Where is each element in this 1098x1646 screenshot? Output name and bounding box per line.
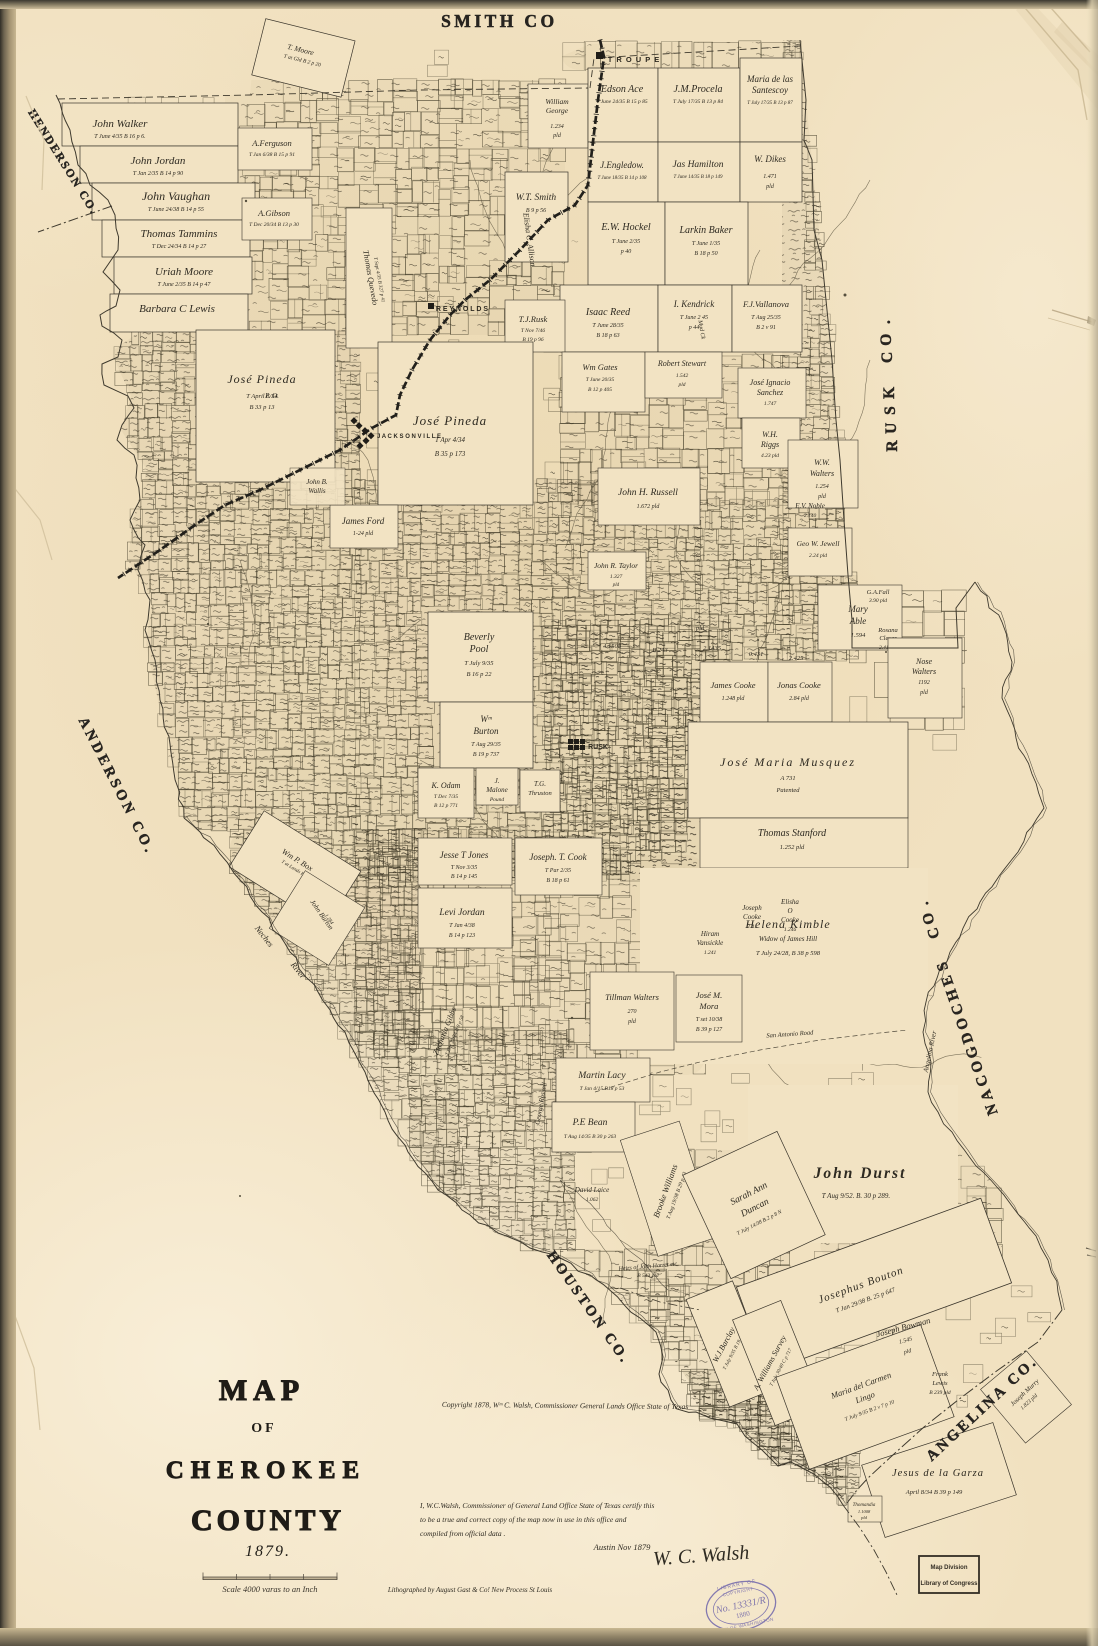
svg-text:B 239 pld: B 239 pld <box>929 1390 951 1396</box>
svg-text:J.: J. <box>495 777 500 785</box>
svg-text:pld: pld <box>627 1019 637 1025</box>
svg-text:pld: pld <box>817 494 827 500</box>
svg-text:T June 18/35 B 14 p 108: T June 18/35 B 14 p 108 <box>597 176 647 181</box>
svg-text:CHEROKEE: CHEROKEE <box>166 1457 366 1484</box>
svg-text:Vansickle: Vansickle <box>697 939 723 947</box>
svg-text:John R. Taylor: John R. Taylor <box>594 561 638 570</box>
svg-text:1.062: 1.062 <box>586 1197 599 1203</box>
svg-text:Walters: Walters <box>810 469 834 478</box>
svg-text:O: O <box>878 334 895 346</box>
svg-text:James Cooke: James Cooke <box>710 680 755 690</box>
svg-text:pld: pld <box>677 382 685 388</box>
svg-text:Lewis: Lewis <box>931 1380 948 1387</box>
svg-text:B 543 pld: B 543 pld <box>637 1272 659 1279</box>
svg-text:Jonas Cooke: Jonas Cooke <box>777 680 821 690</box>
svg-text:P.E Bean: P.E Bean <box>572 1118 608 1128</box>
svg-text:Thruston: Thruston <box>528 790 551 797</box>
svg-text:Jas Hamilton: Jas Hamilton <box>673 160 724 170</box>
svg-text:Rosana: Rosana <box>877 627 898 634</box>
svg-text:C: C <box>879 352 896 363</box>
svg-text:1.594: 1.594 <box>851 632 866 639</box>
svg-text:SMITH: SMITH <box>441 11 517 31</box>
svg-text:2.1435: 2.1435 <box>703 645 722 652</box>
svg-text:T Nov 7/46: T Nov 7/46 <box>521 327 546 334</box>
svg-text:1.248 pld: 1.248 pld <box>722 695 746 702</box>
svg-text:Patented: Patented <box>775 787 800 794</box>
svg-text:G.A.Fall: G.A.Fall <box>867 589 890 596</box>
svg-text:B 16 p 22: B 16 p 22 <box>466 671 492 678</box>
svg-text:2.84 pld: 2.84 pld <box>789 695 810 702</box>
svg-text:Santescoy: Santescoy <box>752 85 788 95</box>
svg-text:T.J.Rusk: T.J.Rusk <box>519 314 548 324</box>
svg-text:T Aug 9/52. B. 30 p 2: T Aug 9/52. B. 30 p 289. <box>822 1192 891 1200</box>
svg-text:Thomandia: Thomandia <box>853 1503 876 1508</box>
svg-text:T Jan 2/35 B 14 p 90: T Jan 2/35 B 14 p 90 <box>133 170 183 177</box>
svg-text:B 14 p 145: B 14 p 145 <box>451 873 477 880</box>
svg-text:T July 17/35 B 13 p 87: T July 17/35 B 13 p 87 <box>747 101 793 106</box>
svg-text:Jesse T Jones: Jesse T Jones <box>440 850 489 860</box>
svg-text:1879.: 1879. <box>245 1543 291 1560</box>
svg-text:April 8/34 B 39 p 149: April 8/34 B 39 p 149 <box>905 1489 963 1496</box>
svg-text:José M.: José M. <box>696 990 722 1000</box>
svg-text:1.327: 1.327 <box>610 574 623 580</box>
svg-text:Thomas Stanford: Thomas Stanford <box>758 828 827 839</box>
svg-text:W.W.: W.W. <box>814 458 830 467</box>
svg-text:W. Dikes: W. Dikes <box>754 154 786 164</box>
svg-text:T June 4/35 B 16 p 6.: T June 4/35 B 16 p 6. <box>94 133 145 140</box>
svg-text:B 35 p 173: B 35 p 173 <box>435 450 466 458</box>
svg-text:T June 20/35: T June 20/35 <box>586 377 615 383</box>
svg-text:1.471: 1.471 <box>763 173 777 180</box>
svg-text:Mora: Mora <box>699 1001 719 1011</box>
svg-text:Joseph. T. Cook: Joseph. T. Cook <box>529 852 587 862</box>
svg-text:Cooke: Cooke <box>781 916 799 924</box>
svg-text:T Jan 4/38: T Jan 4/38 <box>449 922 475 929</box>
svg-text:pld: pld <box>765 184 775 190</box>
svg-text:John Jordan: John Jordan <box>131 155 186 167</box>
svg-text:Nose: Nose <box>915 657 932 666</box>
svg-text:José Maria Musquez: José Maria Musquez <box>720 755 856 769</box>
svg-text:John Durst: John Durst <box>813 1165 907 1182</box>
svg-text:OF: OF <box>251 1421 276 1436</box>
svg-text:José Pineda: José Pineda <box>413 413 487 428</box>
svg-text:T June 24/35 B 15 p 85: T June 24/35 B 15 p 85 <box>596 98 647 105</box>
svg-text:I. Kendrick: I. Kendrick <box>673 299 715 309</box>
svg-text:1192: 1192 <box>918 680 930 686</box>
svg-text:K: K <box>881 387 898 399</box>
svg-text:.: . <box>877 320 894 324</box>
svg-text:Martin Lacy: Martin Lacy <box>577 1071 626 1081</box>
svg-text:T Aug 25/35: T Aug 25/35 <box>751 315 780 321</box>
svg-text:W.T. Smith: W.T. Smith <box>516 193 557 203</box>
svg-text:3.90 pld: 3.90 pld <box>868 598 887 604</box>
svg-text:Pool: Pool <box>469 644 489 655</box>
svg-text:A.Gibson: A.Gibson <box>257 208 290 218</box>
svg-text:S: S <box>882 406 899 415</box>
svg-text:Burton: Burton <box>473 726 499 736</box>
svg-text:James Ford: James Ford <box>342 516 385 526</box>
svg-text:E.V. Noble: E.V. Noble <box>794 502 825 510</box>
svg-text:George: George <box>546 106 569 115</box>
svg-text:T Aug 14/35 B 30 p 263: T Aug 14/35 B 30 p 263 <box>564 1133 617 1140</box>
svg-text:T June 2 45: T June 2 45 <box>680 314 708 321</box>
svg-text:T July 9/35: T July 9/35 <box>464 660 494 667</box>
svg-text:T Par 2/35: T Par 2/35 <box>545 868 571 874</box>
svg-text:2.41: 2.41 <box>747 923 757 930</box>
svg-text:1.542: 1.542 <box>676 372 689 379</box>
svg-text:Robert Stewart: Robert Stewart <box>657 359 707 368</box>
svg-text:Scale 4000 varas to an Inch: Scale 4000 varas to an Inch <box>222 1584 317 1594</box>
svg-text:T June 28/35: T June 28/35 <box>592 323 623 329</box>
svg-text:Lithographed by August Gast &: Lithographed by August Gast & Co! New Pr… <box>387 1586 553 1594</box>
svg-text:pld: pld <box>612 583 620 588</box>
svg-text:T Nov 3/35: T Nov 3/35 <box>451 865 478 871</box>
svg-text:Library of Congress: Library of Congress <box>920 1581 978 1587</box>
svg-text:T June 14/35 B 18 p 149: T June 14/35 B 18 p 149 <box>673 175 723 180</box>
svg-text:José Ignacio: José Ignacio <box>750 378 791 387</box>
svg-text:Barbara C Lewis: Barbara C Lewis <box>139 303 215 315</box>
svg-text:T July 24/28, B 38 p 598: T July 24/28, B 38 p 598 <box>756 950 821 957</box>
svg-text:Jesus de la Garza: Jesus de la Garza <box>892 1468 984 1479</box>
svg-text:John Walker: John Walker <box>93 118 149 130</box>
svg-text:4.23 pld: 4.23 pld <box>761 452 779 459</box>
svg-text:B.243: B.243 <box>652 647 668 654</box>
svg-text:T June 1/35: T June 1/35 <box>692 241 720 247</box>
svg-text:T Jan 6/38 B 15 p 91: T Jan 6/38 B 15 p 91 <box>249 152 295 158</box>
svg-text:T Dec 24/34 B 14 p 27: T Dec 24/34 B 14 p 27 <box>152 243 207 250</box>
svg-text:2.24 pld: 2.24 pld <box>809 552 827 559</box>
svg-text:A.Ferguson: A.Ferguson <box>251 138 292 148</box>
svg-text:Wm Gates: Wm Gates <box>582 362 618 372</box>
svg-text:B 12 p 771: B 12 p 771 <box>434 803 458 809</box>
svg-text:A 731: A 731 <box>779 775 795 782</box>
svg-text:Levi Jordan: Levi Jordan <box>438 908 485 918</box>
svg-text:1.234: 1.234 <box>550 123 564 130</box>
svg-text:T July 17/35 B 13 p 84: T July 17/35 B 13 p 84 <box>673 98 723 105</box>
svg-text:Joseph: Joseph <box>742 904 762 912</box>
svg-text:1.747: 1.747 <box>764 400 777 407</box>
svg-text:Malone: Malone <box>485 786 507 794</box>
svg-text:B 18 p 63: B 18 p 63 <box>596 333 619 339</box>
svg-text:T Aug 29/35: T Aug 29/35 <box>471 742 500 748</box>
svg-text:Geo W. Jewell: Geo W. Jewell <box>797 539 840 548</box>
svg-text:Walters: Walters <box>912 667 936 676</box>
svg-text:pld: pld <box>552 133 562 139</box>
svg-text:Cooke: Cooke <box>743 913 761 921</box>
svg-text:José Pineda: José Pineda <box>227 372 296 386</box>
svg-text:Riggs: Riggs <box>760 440 779 449</box>
svg-text:B 33 p 13: B 33 p 13 <box>249 404 275 411</box>
svg-text:W.H.: W.H. <box>762 430 778 439</box>
svg-text:1-24 pld: 1-24 pld <box>353 530 374 537</box>
svg-text:R E Y N O L D S: R E Y N O L D S <box>436 306 488 313</box>
svg-text:Map Division: Map Division <box>930 1565 967 1571</box>
svg-text:John Vaughan: John Vaughan <box>142 189 210 203</box>
svg-text:Isaac Reed: Isaac Reed <box>585 307 631 318</box>
svg-text:Wᵐ: Wᵐ <box>480 714 492 724</box>
svg-text:B 39 p 127: B 39 p 127 <box>696 1027 723 1033</box>
svg-text:1.246: 1.246 <box>784 926 797 933</box>
svg-text:J.M.Procela: J.M.Procela <box>673 84 722 95</box>
svg-text:R: R <box>884 440 901 452</box>
svg-text:David Laice: David Laice <box>574 1186 609 1194</box>
svg-text:T June 2/35 B 14 p 47: T June 2/35 B 14 p 47 <box>158 281 212 288</box>
svg-text:pld: pld <box>919 690 929 696</box>
svg-text:Pound: Pound <box>489 797 505 803</box>
svg-text:T R O U P E: T R O U P E <box>608 55 661 64</box>
svg-text:270: 270 <box>628 1009 637 1015</box>
svg-text:1.241: 1.241 <box>704 949 717 956</box>
svg-text:p 40: p 40 <box>620 248 632 255</box>
svg-text:T June 2/35: T June 2/35 <box>612 239 640 245</box>
svg-text:P. O.: P. O. <box>264 392 279 400</box>
svg-text:compiled from official data .: compiled from official data . <box>420 1529 505 1538</box>
svg-text:MAP: MAP <box>219 1374 305 1407</box>
svg-text:Thomas Tammins: Thomas Tammins <box>141 228 218 240</box>
svg-text:0.431: 0.431 <box>749 651 764 658</box>
svg-text:T set 10/38: T set 10/38 <box>696 1017 723 1023</box>
svg-text:B 18 p 50: B 18 p 50 <box>694 251 717 257</box>
svg-text:Tillman Walters: Tillman Walters <box>605 992 659 1002</box>
svg-text:J A C K S O N V I L L E: J A C K S O N V I L L E <box>377 434 441 440</box>
svg-text:K. Odam: K. Odam <box>431 781 461 790</box>
svg-text:COUNTY: COUNTY <box>191 1504 345 1537</box>
svg-text:Larkin Baker: Larkin Baker <box>678 225 732 236</box>
svg-text:T.G.: T.G. <box>534 780 546 788</box>
svg-text:Elisha: Elisha <box>780 898 799 906</box>
svg-text:John H. Russell: John H. Russell <box>618 488 678 498</box>
svg-text:1.1008: 1.1008 <box>858 1509 871 1514</box>
svg-text:F.J.Vallanova: F.J.Vallanova <box>742 299 789 309</box>
svg-text:Widow of James Hill: Widow of James Hill <box>759 935 817 943</box>
svg-text:2.425: 2.425 <box>789 655 804 662</box>
svg-text:T June 24/38 B 14 p 55: T June 24/38 B 14 p 55 <box>148 206 204 213</box>
svg-text:U: U <box>883 423 900 434</box>
svg-text:CO: CO <box>524 11 557 31</box>
svg-text:4.1508: 4.1508 <box>603 643 622 650</box>
svg-text:pld: pld <box>860 1515 868 1520</box>
svg-text:William: William <box>545 97 569 106</box>
svg-text:B 2 v 91: B 2 v 91 <box>756 325 776 331</box>
svg-text:John B.: John B. <box>306 478 328 486</box>
svg-text:RUSK: RUSK <box>588 744 608 751</box>
svg-text:B 19 p 737: B 19 p 737 <box>473 752 500 758</box>
svg-text:Austin Nov 1879: Austin Nov 1879 <box>593 1542 651 1552</box>
svg-text:T Jan 4/15 B18 p 53: T Jan 4/15 B18 p 53 <box>580 1085 625 1092</box>
svg-text:Maria de las: Maria de las <box>746 74 793 84</box>
svg-text:Beverly: Beverly <box>464 632 495 643</box>
svg-text:Sanchez: Sanchez <box>757 388 784 397</box>
svg-text:I, W.C.Walsh, Commissioner of: I, W.C.Walsh, Commissioner of General La… <box>419 1501 654 1510</box>
svg-text:2.140: 2.140 <box>804 512 817 519</box>
svg-text:1.672 pld: 1.672 pld <box>637 504 661 510</box>
svg-text:pld: pld <box>695 625 705 632</box>
svg-text:E.W. Hockel: E.W. Hockel <box>600 222 651 233</box>
svg-text:T Dec 20/34 B 13 p 30: T Dec 20/34 B 13 p 30 <box>249 221 299 228</box>
svg-text:1.254: 1.254 <box>815 483 829 490</box>
svg-text:B 12 p 405: B 12 p 405 <box>588 386 612 393</box>
svg-text:B 18 p 61: B 18 p 61 <box>546 878 569 884</box>
svg-text:B 14 p 123: B 14 p 123 <box>449 932 475 939</box>
svg-text:1.252 pld: 1.252 pld <box>780 844 805 851</box>
svg-text:J.Engledow.: J.Engledow. <box>600 160 644 170</box>
svg-text:Uriah Moore: Uriah Moore <box>155 266 213 278</box>
svg-text:O: O <box>787 907 792 915</box>
svg-text:T Dec 7/35: T Dec 7/35 <box>434 794 459 800</box>
svg-text:Frank: Frank <box>931 1371 948 1378</box>
svg-text:to be a true and correct copy: to be a true and correct copy of the map… <box>420 1515 627 1524</box>
svg-text:Edson Ace: Edson Ace <box>600 84 644 95</box>
svg-text:Hiram: Hiram <box>700 930 719 938</box>
svg-text:Wallis: Wallis <box>308 487 326 495</box>
